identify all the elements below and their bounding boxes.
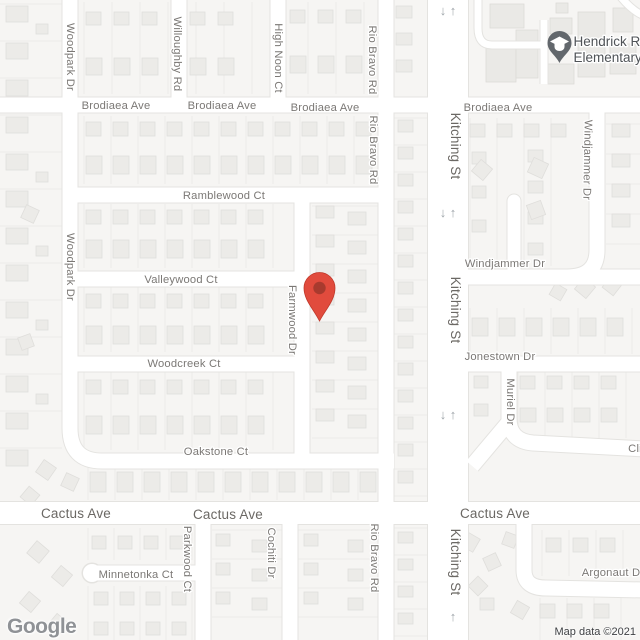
street-label-willoughby-rd: Willoughby Rd — [171, 17, 183, 92]
one-way-arrow-icon: ↑ — [450, 407, 457, 422]
street-label-high-noon-ct: High Noon Ct — [272, 23, 284, 93]
street-label-minnetonka-ct: Minnetonka Ct — [99, 569, 174, 581]
street-label-brodiaea-ave-1: Brodiaea Ave — [82, 100, 151, 112]
street-label-valleywood-ct: Valleywood Ct — [144, 274, 218, 286]
google-logo[interactable]: Google — [7, 615, 76, 639]
street-label-cochiti-dr: Cochiti Dr — [265, 527, 277, 578]
one-way-arrow-icon: ↓ — [440, 3, 447, 18]
one-way-arrow-icon: ↑ — [450, 3, 457, 18]
one-way-arrow-icon: ↑ — [450, 609, 457, 624]
street-label-brodiaea-ave-4: Brodiaea Ave — [464, 102, 533, 114]
street-label-woodpark-dr-2: Woodpark Dr — [64, 233, 76, 301]
street-label-woodcreek-ct: Woodcreek Ct — [147, 358, 221, 370]
street-label-windjammer-dr-v: Windjammer Dr — [580, 120, 593, 201]
street-label-parkwood-ct: Parkwood Ct — [181, 526, 193, 593]
street-label-argonaut-dr: Argonaut Dr — [582, 567, 640, 579]
street-label-cactus-ave-3: Cactus Ave — [460, 506, 530, 521]
map-tiles: Brodiaea AveBrodiaea AveBrodiaea AveBrod… — [0, 0, 640, 640]
pin-inner-dot — [313, 282, 325, 294]
school-poi-label-line1[interactable]: Hendrick R — [574, 34, 640, 49]
street-label-ramblewood-ct: Ramblewood Ct — [183, 190, 266, 202]
street-label-woodpark-dr-1: Woodpark Dr — [64, 23, 76, 91]
street-label-brodiaea-ave-3: Brodiaea Ave — [291, 102, 360, 114]
street-label-windjammer-dr-h: Windjammer Dr — [465, 258, 545, 270]
street-label-muriel-dr: Muriel Dr — [504, 378, 516, 425]
street-label-brodiaea-ave-2: Brodiaea Ave — [188, 100, 257, 112]
one-way-arrow-icon: ↓ — [440, 407, 447, 422]
street-label-oakstone-ct: Oakstone Ct — [184, 446, 249, 458]
street-label-kitching-st-3: Kitching St — [448, 529, 463, 596]
one-way-arrow-icon: ↓ — [440, 205, 447, 220]
map-canvas[interactable]: Brodiaea AveBrodiaea AveBrodiaea AveBrod… — [0, 0, 640, 640]
street-label-cactus-ave-1: Cactus Ave — [41, 506, 111, 521]
street-label-cactus-ave-2: Cactus Ave — [193, 507, 263, 522]
street-label-jonestown-dr: Jonestown Dr — [465, 351, 536, 363]
street-label-rio-bravo-rd-1: Rio Bravo Rd — [366, 26, 378, 95]
street-label-rio-bravo-rd-3: Rio Bravo Rd — [368, 524, 380, 593]
street-label-farmwood-dr: Farmwood Dr — [286, 285, 298, 355]
street-label-cli-street: Cli — [628, 443, 640, 455]
street-label-kitching-st-2: Kitching St — [448, 277, 463, 344]
street-label-rio-bravo-rd-2: Rio Bravo Rd — [367, 116, 379, 185]
one-way-arrow-icon: ↑ — [450, 205, 457, 220]
school-poi-label-line2[interactable]: Elementary — [574, 50, 640, 65]
map-attribution: Map data ©2021 — [555, 626, 637, 638]
street-label-kitching-st-1: Kitching St — [448, 113, 463, 180]
